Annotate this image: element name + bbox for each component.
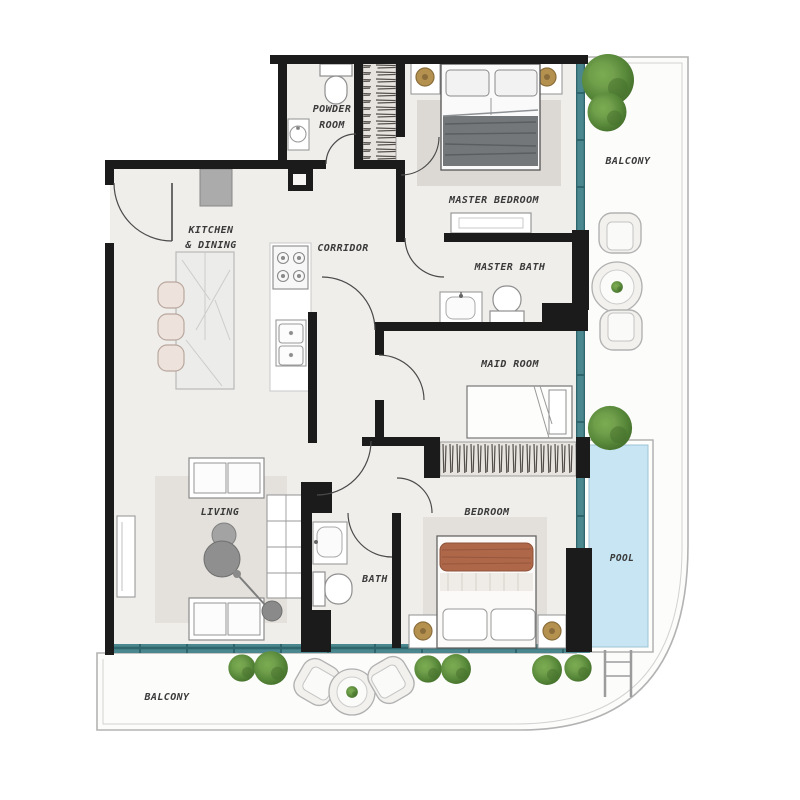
floor-plan: POWDER ROOM KITCHEN & DINING CORRIDOR MA… <box>0 0 800 800</box>
tv-console-icon <box>117 516 135 597</box>
plant-icon <box>441 654 471 684</box>
bath-fixtures <box>313 522 352 606</box>
armchair-icon <box>600 310 642 350</box>
room-label-maid-room: MAID ROOM <box>480 359 539 370</box>
shaft-column <box>200 169 232 206</box>
room-label-kitchen-2: & DINING <box>184 240 236 251</box>
maid-bed-icon <box>467 386 572 438</box>
bookshelf-icon <box>267 495 306 598</box>
room-label-balcony-upper: BALCONY <box>605 156 652 167</box>
side-table-icon <box>592 262 642 312</box>
closet-icon <box>363 57 396 164</box>
room-label-corridor: CORRIDOR <box>317 243 368 254</box>
plant-icon <box>414 655 441 682</box>
sofa-icon <box>189 458 264 498</box>
room-label-powder-room-2: ROOM <box>319 120 345 131</box>
nightstand-icon <box>409 615 437 648</box>
room-label-balcony-lower: BALCONY <box>144 692 191 703</box>
plant-icon <box>564 654 591 681</box>
toilet-icon <box>313 572 352 606</box>
plant-icon <box>532 655 562 685</box>
master-bath-fixtures <box>440 286 524 323</box>
duct-inset <box>293 174 306 185</box>
console-icon <box>451 213 531 233</box>
sofa-icon <box>189 598 264 640</box>
powder-sink-icon <box>288 119 309 150</box>
bar-stool-icon <box>158 282 184 371</box>
pool-water <box>589 445 648 647</box>
room-label-powder-room-1: POWDER <box>313 104 352 115</box>
plant-icon <box>254 651 288 685</box>
stove-icon <box>273 246 308 289</box>
plant-icon <box>588 406 632 450</box>
plant-icon <box>588 93 627 132</box>
nightstand-icon <box>538 615 566 648</box>
room-label-pool: POOL <box>610 553 634 564</box>
room-label-master-bath: MASTER BATH <box>474 262 546 273</box>
room-label-master-bedroom: MASTER BEDROOM <box>448 195 539 206</box>
kitchen-sink-icon <box>276 320 306 366</box>
room-label-living: LIVING <box>201 507 240 518</box>
nightstand-icon <box>411 61 440 94</box>
plant-icon <box>346 686 358 698</box>
room-label-kitchen-1: KITCHEN <box>188 225 235 236</box>
bath-sink-icon <box>313 522 347 564</box>
vanity-sink-icon <box>440 292 482 323</box>
wardrobe-icon <box>440 442 576 476</box>
toilet-icon <box>490 286 524 323</box>
double-bed-icon <box>437 536 536 648</box>
room-label-bath: BATH <box>361 574 388 585</box>
master-bed-icon <box>441 58 540 170</box>
kitchen-island-icon <box>176 252 234 389</box>
plant-icon <box>228 654 255 681</box>
plant-icon <box>611 281 623 293</box>
room-label-bedroom: BEDROOM <box>464 507 511 518</box>
armchair-icon <box>599 213 641 253</box>
